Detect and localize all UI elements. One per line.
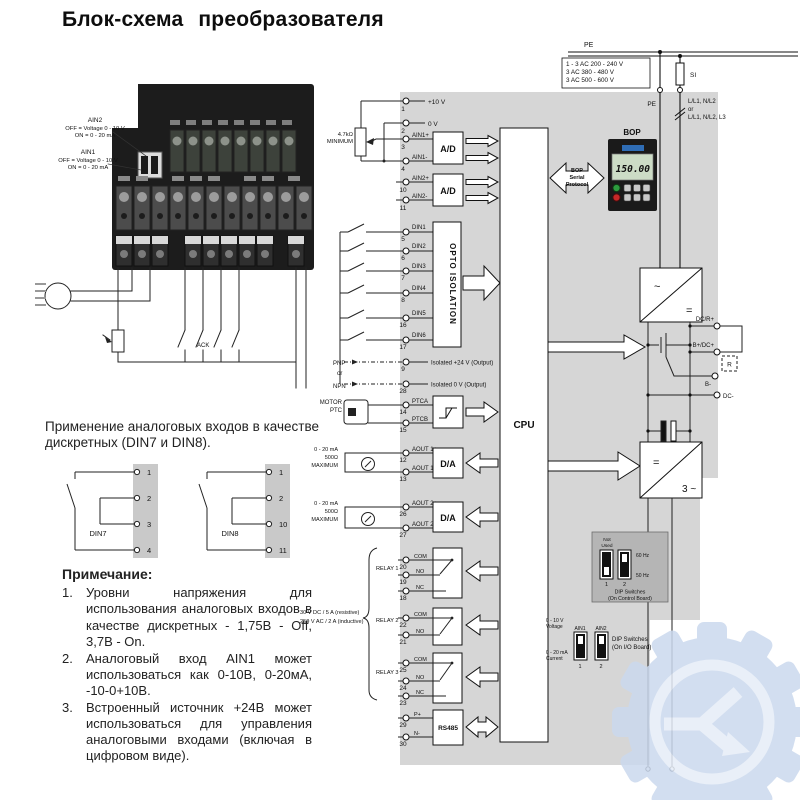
terminal-number: 17 (399, 344, 407, 351)
dc-terminal-label: DC- (723, 394, 734, 400)
rectifier-in-label: ~ (654, 281, 660, 293)
aout-max-note: 500Ω (325, 455, 338, 461)
dip-ain-label: AIN1 (574, 626, 585, 632)
terminal-label: P+ (414, 712, 421, 718)
dip-current-label: Current (546, 656, 563, 662)
relay-spec: 30 V DC / 5 A (resistive) (300, 610, 360, 616)
dip-60hz-label: 60 Hz (636, 553, 650, 559)
terminal-number: 19 (399, 579, 407, 586)
dip-switch-number: 2 (623, 582, 626, 588)
relay-spec: 250 V AC / 2 A (inductive) (300, 619, 364, 625)
relay-group-label: RELAY 2 (376, 618, 399, 624)
dip-caption: DIP Switches (615, 590, 646, 596)
terminal-number: 25 (399, 667, 407, 674)
dip-switch-number: 1 (578, 664, 581, 670)
aout-max-note: MAXIMUM (311, 517, 338, 523)
terminal-number: 16 (399, 322, 407, 329)
ack-label: ACK (197, 343, 209, 349)
dip-caption: DIP Switches (612, 637, 648, 643)
supply-line-label: L/L1, N/L2, L3 (688, 115, 726, 121)
ain2-off-label: OFF = Voltage 0 - 10 V (65, 126, 125, 132)
dip-io-switch-2[interactable] (595, 632, 608, 660)
dip-io-switch-1[interactable] (574, 632, 587, 660)
pe-bus-label: PE (584, 42, 594, 49)
terminal-label: AIN2- (412, 194, 427, 200)
terminal-label: N- (414, 731, 420, 737)
aout-max-note: 0 - 20 mA (314, 447, 338, 453)
terminal-number: 3 (401, 144, 405, 151)
terminal-label: AIN1+ (412, 133, 429, 139)
pot-value-label: 4.7kΩ (338, 132, 354, 138)
terminal-number: 8 (401, 297, 405, 304)
din7-terminal-number: 2 (147, 494, 151, 503)
terminal-label: +10 V (428, 99, 446, 106)
bop-protocol-label: Serial (570, 175, 585, 181)
contact-label: NC (416, 690, 424, 696)
dc-terminal-label: B+/DC+ (693, 343, 715, 349)
terminal-number: 23 (399, 700, 407, 707)
ain-dip-switch (138, 152, 162, 178)
fuse-symbol (676, 63, 684, 85)
brake-resistor-label: R (727, 362, 732, 369)
terminal-label: DIN3 (412, 264, 426, 270)
contact-label: COM (414, 657, 427, 663)
supply-line-label: L/L1, N/L2 (688, 99, 716, 105)
terminal-number: 6 (401, 255, 405, 262)
terminal-label: PTCB (412, 417, 428, 423)
din8-label: DIN8 (221, 529, 238, 538)
inverter-in-label: = (653, 457, 659, 469)
din7-terminal-number: 3 (147, 520, 151, 529)
ptc-trigger-block (433, 396, 463, 428)
mains-voltage: 3 AC 500 - 600 V (566, 77, 615, 84)
din7-diagram: 1 2 3 4 DIN7 (67, 464, 158, 558)
terminal-number: 30 (399, 741, 407, 748)
relay-brace (363, 548, 377, 700)
pnp-label: PNP (333, 361, 345, 367)
relay-group-label: RELAY 3 (376, 670, 399, 676)
terminal-label: 0 V (428, 121, 438, 128)
terminal-label: DIN4 (412, 286, 426, 292)
isolated-0v-label: Isolated 0 V (Output) (431, 383, 486, 389)
terminal-number: 9 (401, 366, 405, 373)
io-board-photo: AIN2 OFF = Voltage 0 - 10 V ON = 0 - 20 … (35, 84, 314, 388)
contact-label: NO (416, 629, 425, 635)
terminal-label: AOUT 1- (412, 466, 436, 472)
motor-ptc-label: MOTOR (320, 400, 343, 406)
terminal-number: 28 (399, 388, 407, 395)
terminal-number: 15 (399, 427, 407, 434)
photo-wiring (35, 268, 306, 388)
terminal-number: 14 (399, 409, 407, 416)
terminal-number: 20 (399, 564, 407, 571)
dip-switch-number: 1 (605, 582, 608, 588)
dip-caption: (On I/O Board) (612, 645, 651, 651)
dip-ain-label: AIN2 (595, 626, 606, 632)
terminal-number: 24 (399, 685, 407, 692)
rectifier-block: ~ = (640, 268, 702, 322)
dip-caption: (On Control Board) (608, 596, 652, 602)
terminal-label: DIN6 (412, 333, 426, 339)
din7-terminal-number: 1 (147, 468, 151, 477)
din8-terminal-number: 11 (279, 546, 287, 555)
contact-label: COM (414, 554, 427, 560)
contact-label: NC (416, 585, 424, 591)
terminal-number: 10 (399, 187, 407, 194)
signal-source-symbol (45, 283, 71, 309)
terminal-number: 1 (401, 106, 405, 113)
rs485-label: RS485 (438, 725, 458, 732)
mains-voltage: 1 - 3 AC 200 - 240 V (566, 61, 624, 68)
terminal-number: 13 (399, 476, 407, 483)
supply-line-label: or (688, 107, 693, 113)
dip-50hz-label: 50 Hz (636, 573, 650, 579)
pe-drop-label: PE (647, 101, 656, 108)
dc-terminal-label: DC/R+ (696, 317, 715, 323)
terminal-number: 21 (399, 639, 407, 646)
din8-terminal-number: 2 (279, 494, 283, 503)
ad-block-label: A/D (440, 144, 456, 154)
terminal-number: 4 (401, 166, 405, 173)
terminal-label: AIN1- (412, 155, 427, 161)
da-block-label: D/A (440, 459, 456, 469)
terminal-label: AIN2+ (412, 176, 429, 182)
dip-switch-2[interactable] (618, 550, 631, 579)
potentiometer-symbol (112, 330, 124, 352)
ad-block-label: A/D (440, 186, 456, 196)
ain2-on-label: ON = 0 - 20 mA (75, 133, 116, 139)
opto-isolation-label: OPTO ISOLATION (448, 243, 457, 325)
terminal-number: 18 (399, 595, 407, 602)
terminal-number: 2 (401, 128, 405, 135)
terminal-label: DIN2 (412, 244, 426, 250)
dip-switch-1[interactable] (600, 550, 613, 579)
dip-not-used-label: Not (603, 537, 611, 543)
dip-switches-control: Not Used 60 Hz 50 Hz 1 2 DIP Switches (O… (592, 532, 668, 602)
din8-terminal-number: 10 (279, 520, 287, 529)
terminal-label: DIN1 (412, 225, 426, 231)
contact-label: NO (416, 569, 425, 575)
bop-display-value: 150.00 (616, 164, 651, 175)
terminal-label: AOUT 2- (412, 522, 436, 528)
din8-diagram: 1 2 10 11 DIN8 (199, 464, 290, 558)
inverter-block: = 3 ~ (640, 442, 702, 498)
contact-label: NO (416, 675, 425, 681)
inverter-out-label: 3 ~ (682, 484, 696, 495)
ain2-label: AIN2 (88, 117, 103, 124)
dip-not-used-label: Used (601, 543, 613, 549)
terminal-label: PTCA (412, 399, 428, 405)
terminal-label: DIN5 (412, 311, 426, 317)
terminal-number: 29 (399, 722, 407, 729)
aout-max-note: MAXIMUM (311, 463, 338, 469)
ain1-on-label: ON = 0 - 20 mA (68, 165, 109, 171)
or-label: or (337, 371, 342, 377)
dc-terminal-label: B- (705, 382, 711, 388)
ain1-label: AIN1 (81, 149, 96, 156)
block-diagram: AIN2 OFF = Voltage 0 - 10 V ON = 0 - 20 … (0, 0, 800, 800)
npn-label: NPN (333, 384, 346, 390)
da-block-label: D/A (440, 513, 456, 523)
bop-start-button[interactable] (613, 184, 620, 191)
cpu-block: CPU (500, 128, 548, 742)
bop-protocol-label: Protocol (566, 182, 589, 188)
fuse-label: SI (690, 72, 696, 79)
motor-ptc-label: PTC (330, 408, 343, 414)
relay-block (433, 608, 462, 645)
rectifier-out-label: = (686, 305, 692, 317)
bop-label: BOP (623, 128, 641, 137)
bop-stop-button[interactable] (613, 194, 620, 201)
terminal-number: 22 (399, 622, 407, 629)
mains-voltage: 3 AC 380 - 480 V (566, 69, 615, 76)
contact-label: COM (414, 612, 427, 618)
cpu-label: CPU (513, 420, 534, 431)
terminal-number: 11 (400, 205, 407, 212)
terminal-number: 7 (401, 275, 405, 282)
aout-max-note: 0 - 20 mA (314, 501, 338, 507)
terminal-number: 26 (399, 511, 407, 518)
relay-group-label: RELAY 1 (376, 566, 399, 572)
din7-label: DIN7 (89, 529, 106, 538)
potentiometer-symbol (355, 128, 366, 156)
isolated-24v-label: Isolated +24 V (Output) (431, 361, 493, 367)
terminal-number: 5 (401, 236, 405, 243)
terminal-number: 27 (399, 532, 407, 539)
din8-terminal-number: 1 (279, 468, 283, 477)
dip-switch-number: 2 (599, 664, 602, 670)
aout-max-note: 500Ω (325, 509, 338, 515)
bop-protocol-label: BOP (571, 168, 583, 174)
din7-terminal-number: 4 (147, 546, 151, 555)
ain1-off-label: OFF = Voltage 0 - 10 V (58, 158, 118, 164)
terminal-number: 12 (399, 457, 407, 464)
dip-voltage-label: Voltage (546, 624, 563, 630)
pot-value-label: MINIMUM (327, 139, 353, 145)
